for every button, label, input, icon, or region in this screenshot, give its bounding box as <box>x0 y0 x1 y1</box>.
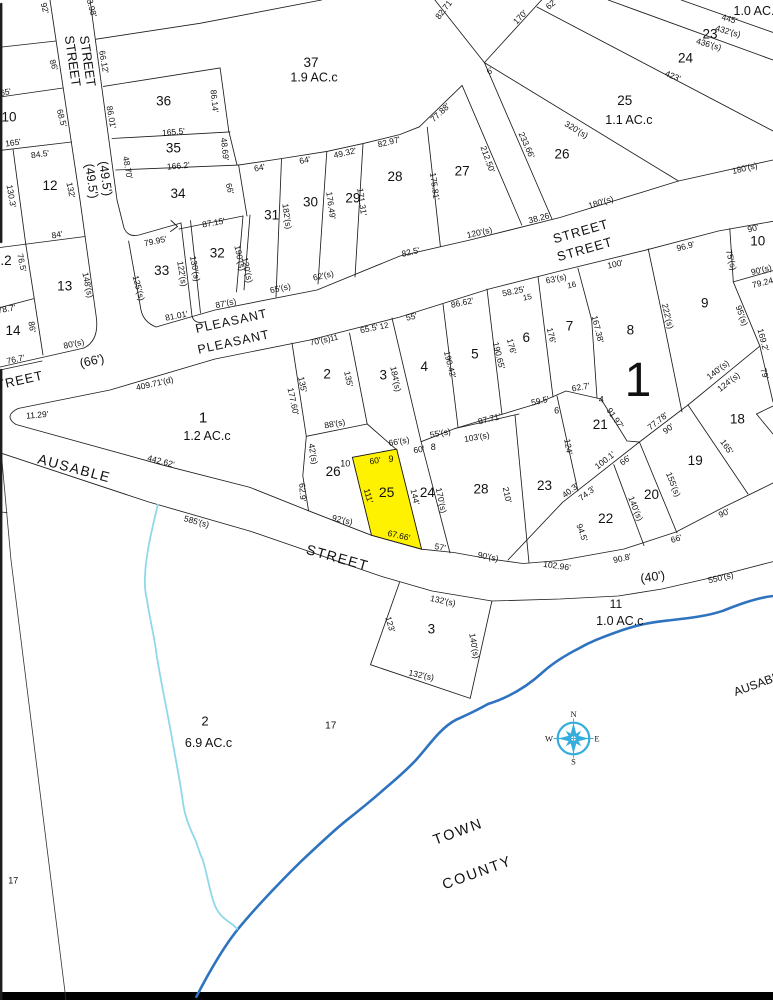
svg-text:25: 25 <box>617 93 632 108</box>
svg-text:S: S <box>571 757 576 767</box>
svg-text:31: 31 <box>264 208 279 223</box>
svg-text:28: 28 <box>473 481 488 496</box>
svg-text:W: W <box>545 734 553 744</box>
svg-text:1.0 AC.c: 1.0 AC.c <box>596 614 643 628</box>
svg-text:165.5': 165.5' <box>162 126 186 138</box>
svg-text:1.9 AC.c: 1.9 AC.c <box>290 71 337 85</box>
svg-text:57': 57' <box>434 541 447 553</box>
svg-text:23: 23 <box>537 478 552 493</box>
svg-text:11.29': 11.29' <box>26 409 49 421</box>
svg-text:11: 11 <box>610 597 623 611</box>
svg-text:10: 10 <box>1 109 16 124</box>
svg-text:6: 6 <box>523 330 531 345</box>
svg-text:35: 35 <box>166 141 181 156</box>
svg-text:5: 5 <box>471 346 479 361</box>
svg-text:6.9 AC.c: 6.9 AC.c <box>185 736 232 750</box>
svg-text:10: 10 <box>340 458 350 468</box>
svg-text:28: 28 <box>387 169 402 184</box>
svg-text:24: 24 <box>420 485 436 500</box>
svg-text:2: 2 <box>323 366 331 381</box>
svg-text:21: 21 <box>593 417 608 432</box>
svg-text:12: 12 <box>42 178 57 193</box>
svg-text:8: 8 <box>431 442 436 452</box>
svg-text:14: 14 <box>5 323 21 338</box>
svg-text:37: 37 <box>303 55 318 70</box>
svg-text:20: 20 <box>644 487 659 502</box>
svg-text:18: 18 <box>730 412 745 427</box>
svg-text:9: 9 <box>388 454 393 464</box>
svg-text:8: 8 <box>627 322 635 337</box>
svg-text:30: 30 <box>303 195 318 210</box>
svg-text:6: 6 <box>554 406 559 416</box>
svg-text:E: E <box>594 734 599 744</box>
svg-text:1: 1 <box>199 410 207 427</box>
svg-text:13: 13 <box>57 278 72 293</box>
svg-text:60': 60' <box>369 455 382 467</box>
svg-text:65': 65' <box>0 86 12 98</box>
svg-text:3: 3 <box>428 621 436 636</box>
svg-text:10: 10 <box>750 233 765 248</box>
svg-text:17: 17 <box>8 876 18 886</box>
svg-text:4: 4 <box>420 359 428 374</box>
svg-text:17: 17 <box>325 721 337 732</box>
svg-text:60': 60' <box>413 443 426 455</box>
svg-text:2: 2 <box>201 714 208 729</box>
svg-text:26: 26 <box>326 464 341 479</box>
svg-text:22: 22 <box>598 511 613 526</box>
svg-text:9: 9 <box>701 295 709 310</box>
svg-text:19: 19 <box>688 453 703 468</box>
svg-text:.2: .2 <box>0 253 11 268</box>
svg-text:25: 25 <box>379 484 395 500</box>
svg-text:N: N <box>570 709 576 719</box>
svg-text:4: 4 <box>599 395 604 405</box>
svg-text:166.2': 166.2' <box>166 160 190 172</box>
svg-text:36: 36 <box>156 93 171 108</box>
svg-text:62.9': 62.9' <box>297 483 308 502</box>
svg-text:32: 32 <box>210 245 225 260</box>
svg-text:1: 1 <box>625 354 652 407</box>
svg-text:26: 26 <box>554 147 569 162</box>
svg-text:34: 34 <box>170 186 186 201</box>
svg-text:24: 24 <box>678 50 694 65</box>
svg-text:86': 86' <box>26 320 38 333</box>
svg-text:33: 33 <box>154 263 169 278</box>
svg-text:84': 84' <box>51 229 64 241</box>
svg-text:1.2 AC.c: 1.2 AC.c <box>183 429 230 443</box>
svg-text:3: 3 <box>379 367 387 382</box>
svg-text:7: 7 <box>566 318 574 333</box>
svg-text:1.0 AC.: 1.0 AC. <box>734 4 773 18</box>
svg-text:1.1 AC.c: 1.1 AC.c <box>605 113 652 127</box>
svg-text:27: 27 <box>455 164 470 179</box>
